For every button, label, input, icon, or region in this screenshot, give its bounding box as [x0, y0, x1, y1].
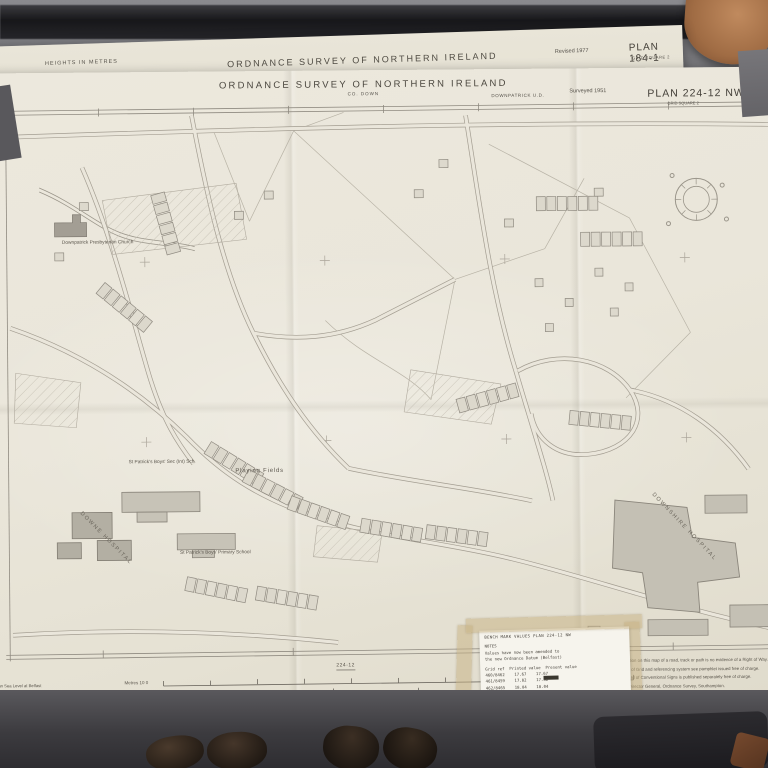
adjoining-sheet-ref: 224-12 — [336, 662, 355, 670]
map-linework — [0, 66, 768, 725]
label-playing-fields: Playing Fields — [215, 468, 305, 475]
map-sheet-front: ORDNANCE SURVEY OF NORTHERN IRELAND CO. … — [0, 66, 768, 725]
hatched-parcels — [12, 181, 502, 565]
boot — [206, 730, 268, 768]
rath-earthwork — [666, 173, 728, 226]
heights-note: HEIGHTS IN METRES — [45, 59, 118, 67]
wood-fragment — [729, 731, 768, 768]
district-label: DOWNPATRICK U.D. — [491, 93, 544, 98]
label-presbyterian-church: Downpatrick Presbyterian Church — [61, 240, 135, 247]
field-boundaries — [214, 109, 691, 401]
datum-note: Mean Sea Level at Belfast — [0, 683, 41, 688]
back-plan-number: PLAN 184-1 — [629, 41, 684, 65]
plan-number: PLAN 224-12 NW — [647, 87, 745, 100]
revision-note: Revised 1977 — [555, 48, 589, 55]
photo-scene: HEIGHTS IN METRES CO. DOWN ORDNANCE SURV… — [0, 0, 768, 768]
note-highlight — [543, 675, 558, 679]
label-primary-school: St Patrick's Boys' Primary School — [175, 550, 255, 557]
back-sheet-title: ORDNANCE SURVEY OF NORTHERN IRELAND — [227, 51, 498, 69]
public-buildings — [54, 209, 768, 654]
floor-sliver — [738, 49, 768, 117]
plan-grid: GRID SQUARE 2 — [667, 100, 698, 105]
scale-metres-label: Metres 10 0 — [124, 680, 148, 685]
label-secondary-school: St Patrick's Boys' Sec (Int) Sch — [121, 460, 203, 467]
survey-note: Surveyed 1951 — [569, 88, 606, 94]
